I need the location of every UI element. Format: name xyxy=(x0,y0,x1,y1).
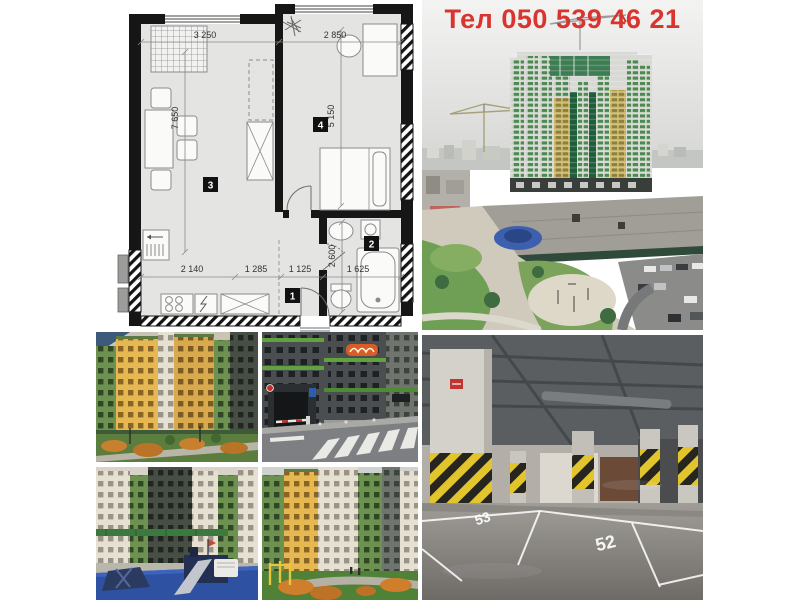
photo-building-aerial: Тел 050 539 46 21 xyxy=(422,0,703,330)
room-badge-bath: 2 xyxy=(369,240,375,251)
room-badge-hall: 1 xyxy=(290,292,296,303)
room-badge-living: 3 xyxy=(208,181,214,192)
apartment-buildings xyxy=(96,332,258,438)
no-entry-sign xyxy=(267,385,274,392)
dim-bottom-2: 1 285 xyxy=(245,264,268,274)
phone-number: Тел 050 539 46 21 xyxy=(422,4,703,35)
photo-street-garage-entrance xyxy=(262,332,418,462)
photo-blue-playground xyxy=(96,467,258,600)
photo-courtyard-autumn xyxy=(96,332,258,462)
green-walkway-band xyxy=(96,529,228,536)
real-estate-collage: { "contact": { "phone": "Тел 050 539 46 … xyxy=(0,0,800,600)
plan-window-living xyxy=(165,14,240,24)
photo-underground-parking: 53 52 xyxy=(422,335,703,600)
plan-window-bedroom xyxy=(295,4,373,14)
dim-top-left: 3 250 xyxy=(194,30,217,40)
dim-bottom-3: 1 125 xyxy=(289,264,312,274)
photo-courtyard-sunny xyxy=(262,467,418,600)
white-cabin xyxy=(214,559,238,577)
storefront-sign xyxy=(346,344,378,356)
parking-sign xyxy=(309,388,316,397)
outdoor-parking xyxy=(618,254,703,330)
dim-left-height: 7 650 xyxy=(170,107,180,130)
room-badge-bedroom: 4 xyxy=(318,121,324,132)
brown-gate xyxy=(600,457,638,501)
dim-bottom-4: 1 625 xyxy=(347,264,370,274)
apartment-floor-plan: 3 250 2 850 7 650 5 150 2 600 2 140 1 28… xyxy=(95,0,425,332)
garage-entrance xyxy=(267,384,316,428)
apartment-buildings xyxy=(262,467,418,573)
construction-site xyxy=(422,170,470,212)
apartment-buildings xyxy=(96,467,258,563)
dim-bath-height: 2 600 xyxy=(327,245,337,268)
dim-top-right: 2 850 xyxy=(324,30,347,40)
dim-bottom-1: 2 140 xyxy=(181,264,204,274)
